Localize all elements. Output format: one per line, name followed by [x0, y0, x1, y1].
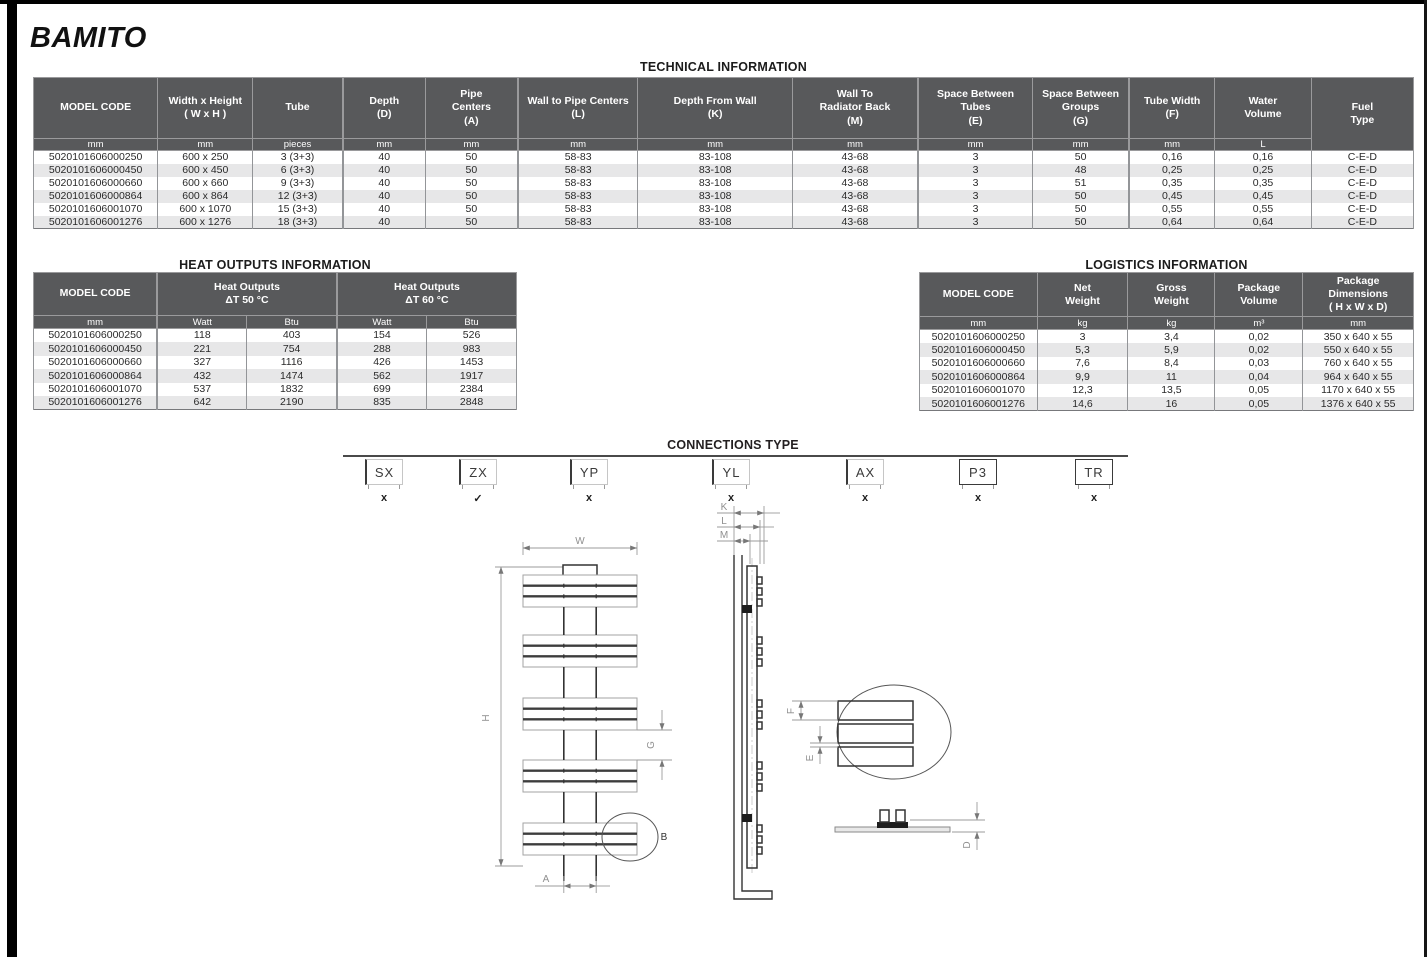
technical-information-table: MODEL CODEWidth x Height ( W x H )TubeDe…	[33, 77, 1414, 229]
table-cell: 0,04	[1215, 370, 1303, 384]
table-cell: 3,4	[1128, 330, 1215, 344]
table-cell: 50	[425, 190, 517, 203]
table-cell: 40	[343, 177, 426, 190]
table-cell: 43-68	[792, 164, 918, 177]
table-cell: 11	[1128, 370, 1215, 384]
table-cell: 432	[157, 369, 247, 383]
table-cell: 327	[157, 356, 247, 370]
table-row: 502010160600107012,313,50,051170 x 640 x…	[920, 384, 1414, 398]
connection-pipe-ticks	[462, 485, 494, 489]
table-cell: 15 (3+3)	[253, 203, 343, 216]
table-cell: 0,02	[1215, 343, 1303, 357]
table-cell: 40	[343, 164, 426, 177]
connection-type-icon: TR	[1075, 459, 1113, 485]
column-header: Net Weight	[1037, 273, 1128, 317]
connection-status: x	[1064, 492, 1124, 504]
table-cell: 5020101606001276	[920, 397, 1038, 411]
table-cell: 9 (3+3)	[253, 177, 343, 190]
table-cell: 0,45	[1215, 190, 1312, 203]
unit-header: mm	[638, 139, 793, 151]
table-cell: 5020101606000864	[34, 369, 158, 383]
connection-code: P3	[969, 465, 987, 480]
table-cell: C-E-D	[1311, 151, 1413, 164]
table-cell: 50	[1033, 216, 1130, 229]
table-row: 50201016060008649,9110,04964 x 640 x 55	[920, 370, 1414, 384]
table-cell: 5020101606001070	[34, 383, 158, 397]
table-cell: 6 (3+3)	[253, 164, 343, 177]
table-cell: 642	[157, 396, 247, 410]
table-cell: 0,35	[1215, 177, 1312, 190]
column-header: Water Volume	[1215, 78, 1312, 139]
connection-code: YL	[723, 465, 741, 480]
table-row: 502010160600107053718326992384	[34, 383, 517, 397]
dim-label-k: K	[721, 502, 728, 513]
column-header: MODEL CODE	[34, 273, 158, 316]
connections-title: CONNECTIONS TYPE	[330, 438, 1136, 452]
column-header: Pipe Centers (A)	[425, 78, 517, 139]
connection-type-icon: YL	[712, 459, 750, 485]
dim-label-w: W	[575, 536, 585, 547]
table-cell: 83-108	[638, 203, 793, 216]
table-cell: 5020101606001276	[34, 216, 158, 229]
logistics-section-title: LOGISTICS INFORMATION	[919, 258, 1414, 272]
table-cell: 5020101606000864	[34, 190, 158, 203]
table-cell: 1170 x 640 x 55	[1303, 384, 1414, 398]
table-cell: 0,55	[1129, 203, 1215, 216]
table-cell: 50	[425, 177, 517, 190]
table-cell: C-E-D	[1311, 203, 1413, 216]
table-cell: C-E-D	[1311, 190, 1413, 203]
table-cell: 43-68	[792, 151, 918, 164]
table-cell: 288	[337, 342, 427, 356]
connection-item: TR x	[1064, 459, 1124, 504]
table-cell: 2848	[427, 396, 517, 410]
column-header: Package Dimensions ( H x W x D)	[1303, 273, 1414, 317]
table-cell: 0,64	[1129, 216, 1215, 229]
table-cell: 50	[1033, 203, 1130, 216]
table-row: 502010160600127614,6160,051376 x 640 x 5…	[920, 397, 1414, 411]
table-cell: 537	[157, 383, 247, 397]
column-header: Package Volume	[1215, 273, 1303, 317]
table-cell: 14,6	[1037, 397, 1128, 411]
table-cell: 16	[1128, 397, 1215, 411]
table-cell: 5020101606000250	[34, 329, 158, 343]
table-cell: 5020101606000450	[34, 342, 158, 356]
table-cell: 1474	[247, 369, 337, 383]
connection-pipe-ticks	[962, 485, 994, 489]
table-cell: 221	[157, 342, 247, 356]
table-cell: 1917	[427, 369, 517, 383]
table-cell: 58-83	[518, 216, 638, 229]
heat-outputs-section-title: HEAT OUTPUTS INFORMATION	[33, 258, 517, 272]
table-cell: 43-68	[792, 177, 918, 190]
table-cell: 83-108	[638, 177, 793, 190]
table-cell: 0,25	[1215, 164, 1312, 177]
connection-code: ZX	[469, 465, 488, 480]
column-header: Tube Width (F)	[1129, 78, 1215, 139]
table-cell: 12,3	[1037, 384, 1128, 398]
table-row: 5020101606000450600 x 4506 (3+3)405058-8…	[34, 164, 1414, 177]
table-cell: 3	[918, 216, 1033, 229]
table-cell: 58-83	[518, 164, 638, 177]
connection-code: SX	[375, 465, 394, 480]
table-cell: 118	[157, 329, 247, 343]
table-cell: 3	[918, 203, 1033, 216]
connection-pipe-ticks	[715, 485, 747, 489]
heat-outputs-table: MODEL CODEHeat Outputs ΔT 50 °CHeat Outp…	[33, 272, 517, 410]
connection-item: SX x	[354, 459, 414, 504]
unit-header: mm	[920, 317, 1038, 330]
table-cell: C-E-D	[1311, 177, 1413, 190]
unit-header: mm	[1129, 139, 1215, 151]
unit-header: mm	[518, 139, 638, 151]
column-header: Gross Weight	[1128, 273, 1215, 317]
logistics-table: MODEL CODENet WeightGross WeightPackage …	[919, 272, 1414, 411]
column-header: MODEL CODE	[34, 78, 158, 139]
table-cell: 83-108	[638, 190, 793, 203]
connections-divider	[343, 455, 1128, 457]
top-view: D	[835, 802, 985, 850]
unit-header: kg	[1128, 317, 1215, 330]
detail-view: F E	[786, 685, 951, 779]
connection-code: AX	[856, 465, 875, 480]
table-cell: 51	[1033, 177, 1130, 190]
table-cell: 403	[247, 329, 337, 343]
table-cell: 5020101606000864	[920, 370, 1038, 384]
table-cell: 760 x 640 x 55	[1303, 357, 1414, 371]
dim-label-d: D	[962, 841, 973, 848]
table-cell: 83-108	[638, 164, 793, 177]
dim-label-a: A	[543, 874, 550, 885]
column-header: Tube	[253, 78, 343, 139]
table-cell: 526	[427, 329, 517, 343]
column-header: MODEL CODE	[920, 273, 1038, 317]
unit-header: mm	[918, 139, 1033, 151]
connection-status: x	[354, 492, 414, 504]
column-header: Depth From Wall (K)	[638, 78, 793, 139]
table-cell: 5020101606001070	[920, 384, 1038, 398]
table-cell: 983	[427, 342, 517, 356]
page-edge-top	[0, 0, 1427, 4]
table-cell: 40	[343, 190, 426, 203]
unit-header: Btu	[427, 316, 517, 329]
connection-type-icon: P3	[959, 459, 997, 485]
table-row: 5020101606000250118403154526	[34, 329, 517, 343]
table-cell: C-E-D	[1311, 164, 1413, 177]
table-cell: 0,05	[1215, 384, 1303, 398]
table-cell: 5020101606000660	[34, 356, 158, 370]
column-header: Heat Outputs ΔT 50 °C	[157, 273, 337, 316]
table-row: 50201016060006607,68,40,03760 x 640 x 55	[920, 357, 1414, 371]
technical-section-title: TECHNICAL INFORMATION	[33, 60, 1414, 74]
connection-pipe-ticks	[1078, 485, 1110, 489]
table-cell: 5020101606000250	[34, 151, 158, 164]
table-cell: 18 (3+3)	[253, 216, 343, 229]
table-cell: 0,02	[1215, 330, 1303, 344]
table-cell: 9,9	[1037, 370, 1128, 384]
table-cell: 0,35	[1129, 177, 1215, 190]
connection-pipe-ticks	[849, 485, 881, 489]
unit-header: pieces	[253, 139, 343, 151]
table-cell: 0,55	[1215, 203, 1312, 216]
table-cell: 12 (3+3)	[253, 190, 343, 203]
table-cell: 43-68	[792, 216, 918, 229]
table-cell: 754	[247, 342, 337, 356]
table-cell: 1453	[427, 356, 517, 370]
connection-pipe-ticks	[573, 485, 605, 489]
table-cell: 7,6	[1037, 357, 1128, 371]
table-row: 5020101606000450221754288983	[34, 342, 517, 356]
technical-dimension-drawing: W H A	[440, 498, 1000, 930]
table-cell: 562	[337, 369, 427, 383]
unit-header: mm	[34, 139, 158, 151]
unit-header: Watt	[157, 316, 247, 329]
table-row: 5020101606000250600 x 2503 (3+3)405058-8…	[34, 151, 1414, 164]
table-cell: 2384	[427, 383, 517, 397]
table-cell: 699	[337, 383, 427, 397]
table-cell: 600 x 250	[158, 151, 253, 164]
unit-header: kg	[1037, 317, 1128, 330]
table-cell: 58-83	[518, 190, 638, 203]
table-cell: 600 x 1276	[158, 216, 253, 229]
connection-type-icon: AX	[846, 459, 884, 485]
table-cell: 58-83	[518, 177, 638, 190]
table-cell: 5020101606001070	[34, 203, 158, 216]
side-view: K L M	[717, 502, 780, 899]
table-cell: 58-83	[518, 203, 638, 216]
table-cell: 50	[425, 151, 517, 164]
table-cell: 0,03	[1215, 357, 1303, 371]
dim-label-f: F	[786, 708, 797, 714]
table-cell: 3	[918, 177, 1033, 190]
connection-type-icon: SX	[365, 459, 403, 485]
table-cell: 5020101606000250	[920, 330, 1038, 344]
table-row: 5020101606001070600 x 107015 (3+3)405058…	[34, 203, 1414, 216]
column-header: Width x Height ( W x H )	[158, 78, 253, 139]
table-row: 50201016060004505,35,90,02550 x 640 x 55	[920, 343, 1414, 357]
table-cell: 83-108	[638, 151, 793, 164]
table-cell: 0,16	[1215, 151, 1312, 164]
table-cell: 426	[337, 356, 427, 370]
table-row: 502010160600086443214745621917	[34, 369, 517, 383]
connection-code: YP	[580, 465, 599, 480]
table-cell: 5,3	[1037, 343, 1128, 357]
table-cell: 8,4	[1128, 357, 1215, 371]
table-cell: 5020101606000450	[920, 343, 1038, 357]
table-cell: 40	[343, 203, 426, 216]
unit-header: mm	[425, 139, 517, 151]
page-root: BAMITO TECHNICAL INFORMATION MODEL CODEW…	[0, 0, 1427, 957]
table-cell: 154	[337, 329, 427, 343]
table-cell: 58-83	[518, 151, 638, 164]
dim-label-g: G	[646, 741, 657, 749]
table-cell: 600 x 450	[158, 164, 253, 177]
table-cell: 5020101606001276	[34, 396, 158, 410]
unit-header: mm	[1303, 317, 1414, 330]
column-header: Fuel Type	[1311, 78, 1413, 151]
table-cell: 0,05	[1215, 397, 1303, 411]
table-cell: 48	[1033, 164, 1130, 177]
table-cell: 50	[425, 216, 517, 229]
table-cell: 0,45	[1129, 190, 1215, 203]
table-row: 502010160600127664221908352848	[34, 396, 517, 410]
table-cell: 50	[425, 203, 517, 216]
table-cell: 600 x 660	[158, 177, 253, 190]
table-cell: 5020101606000450	[34, 164, 158, 177]
unit-header: mm	[34, 316, 158, 329]
table-cell: 350 x 640 x 55	[1303, 330, 1414, 344]
table-row: 502010160600025033,40,02350 x 640 x 55	[920, 330, 1414, 344]
connection-code: TR	[1084, 465, 1103, 480]
table-cell: 13,5	[1128, 384, 1215, 398]
table-cell: 50	[1033, 190, 1130, 203]
unit-header: mm	[343, 139, 426, 151]
table-cell: 1376 x 640 x 55	[1303, 397, 1414, 411]
connection-type-icon: ZX	[459, 459, 497, 485]
table-cell: 40	[343, 151, 426, 164]
column-header: Wall to Pipe Centers (L)	[518, 78, 638, 139]
unit-header: Watt	[337, 316, 427, 329]
table-cell: 1832	[247, 383, 337, 397]
table-cell: 43-68	[792, 203, 918, 216]
table-cell: 83-108	[638, 216, 793, 229]
unit-header: mm	[1033, 139, 1130, 151]
column-header: Heat Outputs ΔT 60 °C	[337, 273, 517, 316]
table-cell: 550 x 640 x 55	[1303, 343, 1414, 357]
table-row: 5020101606000660600 x 6609 (3+3)405058-8…	[34, 177, 1414, 190]
table-cell: 5,9	[1128, 343, 1215, 357]
unit-header: Btu	[247, 316, 337, 329]
table-cell: 50	[1033, 151, 1130, 164]
table-cell: 1116	[247, 356, 337, 370]
table-cell: 3	[1037, 330, 1128, 344]
dim-label-m: M	[720, 530, 728, 541]
table-cell: 3	[918, 164, 1033, 177]
table-cell: 600 x 864	[158, 190, 253, 203]
front-view: W H A	[481, 536, 672, 893]
connection-pipe-ticks	[368, 485, 400, 489]
table-cell: 0,16	[1129, 151, 1215, 164]
table-cell: 3	[918, 151, 1033, 164]
table-cell: 40	[343, 216, 426, 229]
unit-header: mm	[792, 139, 918, 151]
table-cell: 50	[425, 164, 517, 177]
table-cell: 5020101606000660	[34, 177, 158, 190]
detail-callout-label: B	[661, 832, 668, 843]
dim-label-e: E	[805, 754, 816, 761]
connection-type-icon: YP	[570, 459, 608, 485]
table-cell: 43-68	[792, 190, 918, 203]
table-cell: 0,25	[1129, 164, 1215, 177]
product-title: BAMITO	[30, 22, 147, 55]
table-cell: 0,64	[1215, 216, 1312, 229]
column-header: Space Between Groups (G)	[1033, 78, 1130, 139]
table-cell: 600 x 1070	[158, 203, 253, 216]
table-cell: 835	[337, 396, 427, 410]
table-row: 5020101606000864600 x 86412 (3+3)405058-…	[34, 190, 1414, 203]
table-cell: 3	[918, 190, 1033, 203]
table-cell: 5020101606000660	[920, 357, 1038, 371]
table-row: 5020101606001276600 x 127618 (3+3)405058…	[34, 216, 1414, 229]
table-cell: 2190	[247, 396, 337, 410]
page-edge-left	[7, 0, 17, 957]
table-cell: 964 x 640 x 55	[1303, 370, 1414, 384]
unit-header: mm	[158, 139, 253, 151]
column-header: Depth (D)	[343, 78, 426, 139]
dim-label-l: L	[721, 516, 727, 527]
table-cell: C-E-D	[1311, 216, 1413, 229]
table-row: 502010160600066032711164261453	[34, 356, 517, 370]
unit-header: L	[1215, 139, 1312, 151]
column-header: Wall To Radiator Back (M)	[792, 78, 918, 139]
dim-label-h: H	[481, 714, 492, 721]
unit-header: m³	[1215, 317, 1303, 330]
table-cell: 3 (3+3)	[253, 151, 343, 164]
column-header: Space Between Tubes (E)	[918, 78, 1033, 139]
